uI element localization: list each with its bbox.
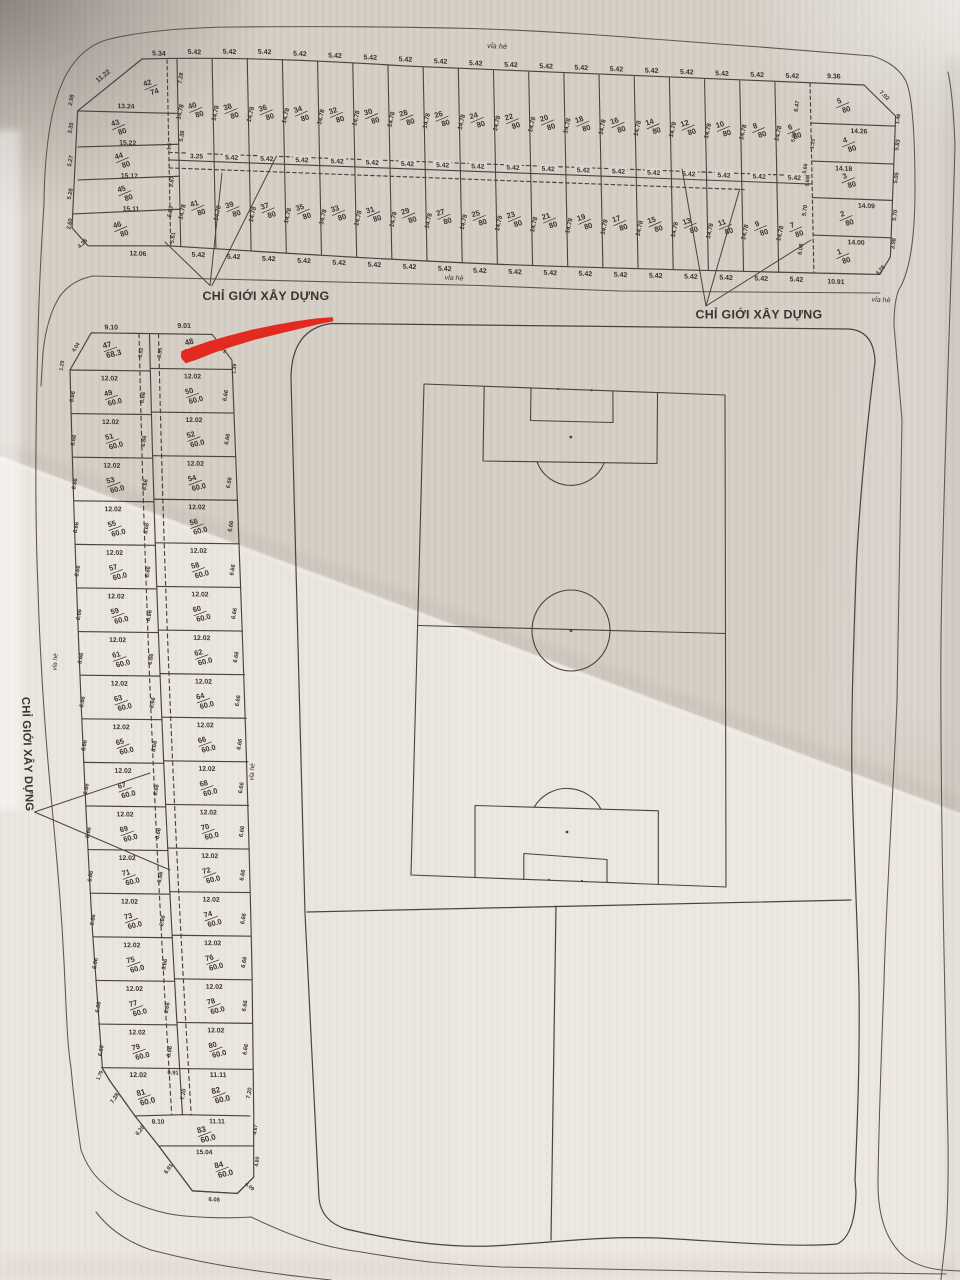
svg-text:15.04: 15.04: [196, 1149, 213, 1156]
svg-text:12.02: 12.02: [114, 768, 132, 775]
svg-text:vỉa hè: vỉa hè: [872, 296, 891, 305]
svg-text:vỉa hè: vỉa hè: [487, 41, 507, 51]
svg-text:12.02: 12.02: [129, 1072, 147, 1079]
svg-text:5.42: 5.42: [719, 275, 733, 282]
svg-text:5.42: 5.42: [258, 49, 272, 56]
svg-text:12.02: 12.02: [113, 724, 131, 731]
svg-text:5.42: 5.42: [785, 73, 799, 80]
svg-text:5.42: 5.42: [614, 272, 628, 279]
svg-text:5.42: 5.42: [574, 65, 588, 72]
svg-text:vỉa hè: vỉa hè: [247, 763, 256, 781]
svg-text:5.42: 5.42: [434, 58, 448, 65]
svg-text:13.24: 13.24: [117, 103, 134, 111]
svg-text:10.91: 10.91: [827, 279, 844, 287]
svg-text:11.11: 11.11: [210, 1072, 227, 1079]
svg-text:12.06: 12.06: [129, 250, 146, 258]
svg-text:8.10: 8.10: [152, 1119, 165, 1126]
svg-text:12.02: 12.02: [200, 809, 218, 816]
svg-text:12.02: 12.02: [197, 722, 215, 729]
svg-text:15.17: 15.17: [121, 173, 138, 181]
svg-text:5.42: 5.42: [788, 175, 802, 182]
svg-text:5.42: 5.42: [542, 166, 556, 173]
svg-text:5.42: 5.42: [647, 170, 661, 177]
svg-text:12.02: 12.02: [204, 940, 222, 947]
svg-text:5.42: 5.42: [262, 256, 276, 263]
svg-text:5.42: 5.42: [403, 264, 417, 271]
svg-text:vỉa hè: vỉa hè: [445, 274, 464, 283]
svg-text:5.42: 5.42: [227, 254, 241, 261]
svg-text:5.42: 5.42: [577, 167, 591, 174]
svg-text:12.02: 12.02: [104, 506, 122, 513]
svg-text:12.02: 12.02: [102, 419, 120, 426]
svg-text:5.42: 5.42: [717, 172, 731, 179]
svg-text:5.42: 5.42: [715, 70, 729, 77]
svg-text:12.02: 12.02: [123, 942, 141, 949]
svg-text:5.42: 5.42: [225, 154, 239, 161]
svg-text:5.42: 5.42: [297, 258, 311, 265]
svg-text:5.42: 5.42: [754, 275, 768, 282]
svg-text:12.02: 12.02: [187, 461, 205, 468]
svg-text:11.11: 11.11: [209, 1118, 225, 1125]
svg-text:9.10: 9.10: [104, 324, 118, 331]
svg-text:12.02: 12.02: [191, 591, 209, 598]
svg-text:5.42: 5.42: [504, 62, 518, 69]
svg-text:12.02: 12.02: [109, 637, 127, 644]
svg-text:14.00: 14.00: [848, 239, 865, 247]
svg-text:12.02: 12.02: [201, 853, 219, 860]
svg-text:5.42: 5.42: [790, 276, 804, 283]
svg-text:0.91: 0.91: [167, 1070, 179, 1076]
svg-text:5.42: 5.42: [539, 63, 553, 70]
svg-text:12.02: 12.02: [195, 679, 213, 686]
svg-text:12.02: 12.02: [206, 984, 224, 991]
svg-text:5.42: 5.42: [260, 156, 274, 163]
svg-text:6.08: 6.08: [209, 1197, 221, 1204]
svg-text:12.02: 12.02: [190, 548, 208, 555]
svg-text:5.42: 5.42: [680, 69, 694, 76]
svg-text:5.42: 5.42: [753, 173, 767, 180]
svg-text:5.42: 5.42: [192, 252, 206, 259]
svg-text:12.02: 12.02: [207, 1027, 225, 1034]
svg-text:12.02: 12.02: [121, 899, 139, 906]
svg-text:12.02: 12.02: [111, 681, 129, 688]
svg-text:14.18: 14.18: [835, 165, 852, 173]
svg-text:12.02: 12.02: [119, 855, 137, 862]
svg-text:5.42: 5.42: [508, 269, 522, 276]
svg-text:5.42: 5.42: [612, 168, 626, 175]
svg-text:14.09: 14.09: [858, 203, 875, 211]
svg-text:5.42: 5.42: [223, 49, 237, 56]
svg-text:15.11: 15.11: [123, 206, 140, 214]
svg-text:12.02: 12.02: [126, 986, 144, 993]
svg-text:CHỈ GIỚI XÂY DỰNG: CHỈ GIỚI XÂY DỰNG: [696, 307, 823, 322]
svg-text:5.42: 5.42: [469, 60, 483, 67]
svg-text:5.42: 5.42: [295, 157, 309, 164]
svg-text:5.42: 5.42: [684, 274, 698, 281]
svg-text:5.42: 5.42: [368, 262, 382, 269]
svg-text:5.42: 5.42: [543, 270, 557, 277]
svg-text:12.02: 12.02: [193, 635, 211, 642]
svg-text:5.42: 5.42: [401, 161, 415, 168]
svg-text:5.34: 5.34: [152, 50, 166, 57]
svg-text:5.42: 5.42: [328, 52, 342, 59]
svg-text:12.02: 12.02: [188, 504, 206, 511]
svg-text:5.42: 5.42: [438, 266, 452, 273]
svg-text:9.36: 9.36: [827, 73, 841, 80]
svg-text:5.42: 5.42: [332, 260, 346, 267]
svg-text:12.02: 12.02: [129, 1029, 147, 1036]
svg-text:15.22: 15.22: [119, 140, 136, 148]
svg-text:5.42: 5.42: [363, 54, 377, 61]
svg-text:5.42: 5.42: [293, 51, 307, 58]
svg-text:12.02: 12.02: [117, 811, 135, 818]
svg-text:12.02: 12.02: [103, 463, 121, 470]
svg-text:CHỈ GIỚI XÂY DỰNG: CHỈ GIỚI XÂY DỰNG: [203, 288, 330, 303]
svg-text:5.42: 5.42: [649, 273, 663, 280]
svg-text:14.26: 14.26: [850, 128, 867, 136]
svg-text:12.02: 12.02: [203, 897, 221, 904]
svg-text:12.02: 12.02: [106, 550, 124, 557]
svg-text:5.42: 5.42: [610, 66, 624, 73]
svg-text:5.42: 5.42: [436, 162, 450, 169]
svg-text:12.02: 12.02: [198, 766, 216, 773]
svg-text:5.42: 5.42: [188, 49, 202, 56]
svg-text:5.42: 5.42: [473, 268, 487, 275]
svg-text:5.42: 5.42: [366, 159, 380, 166]
svg-text:12.02: 12.02: [185, 417, 203, 424]
svg-text:12.02: 12.02: [101, 375, 119, 382]
svg-text:1.5: 1.5: [166, 143, 173, 151]
svg-text:3.25: 3.25: [190, 153, 204, 160]
svg-text:vỉa hè: vỉa hè: [50, 653, 59, 671]
svg-text:9.01: 9.01: [177, 323, 191, 330]
svg-text:5.42: 5.42: [506, 165, 520, 172]
svg-text:12.02: 12.02: [107, 593, 125, 600]
svg-text:12.02: 12.02: [184, 373, 202, 380]
svg-text:5.42: 5.42: [682, 171, 696, 178]
svg-text:5.42: 5.42: [579, 271, 593, 278]
svg-text:5.42: 5.42: [399, 56, 413, 63]
svg-text:5.42: 5.42: [750, 72, 764, 79]
svg-text:5.42: 5.42: [331, 158, 345, 165]
svg-text:5.42: 5.42: [645, 67, 659, 74]
svg-text:5.42: 5.42: [471, 163, 485, 170]
